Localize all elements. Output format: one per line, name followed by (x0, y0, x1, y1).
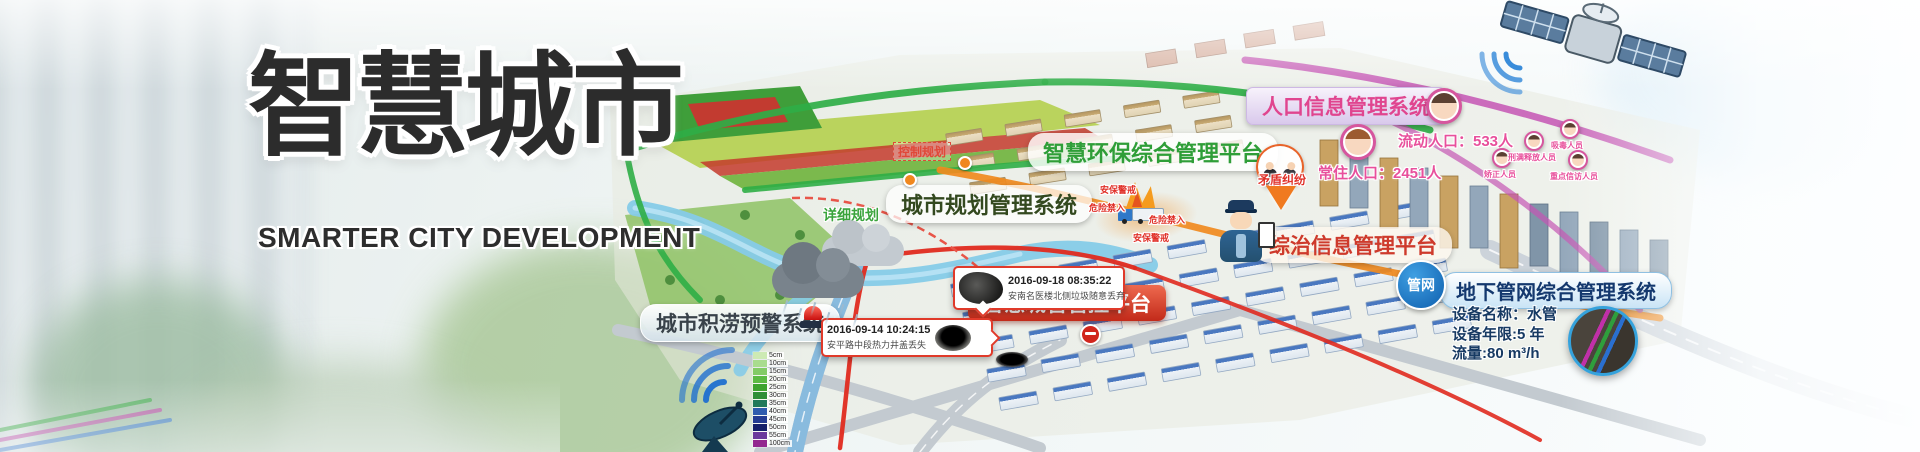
dish-signal-arcs (682, 350, 732, 400)
pipe-device-age: 设备年限:5 年 (1452, 323, 1545, 344)
focus-group-label: 重点信访人员 (1550, 171, 1598, 182)
manhole-photo (935, 325, 971, 351)
satellite-icon (1488, 0, 1698, 86)
danger-no-entry-label: 危险禁入 (1089, 201, 1125, 214)
label-environment-platform[interactable]: 智慧环保综合管理平台 (1028, 133, 1278, 171)
label-governance-platform[interactable]: 综治信息管理平台 (1254, 227, 1452, 263)
pipe-flow-rate: 流量:80 m³/h (1452, 342, 1540, 363)
dish-body (689, 401, 751, 452)
label-planning-system[interactable]: 城市规划管理系统 (886, 185, 1092, 223)
env-alert-icon (958, 156, 972, 170)
incident-time: 2016-09-18 08:35:22 (1008, 275, 1125, 287)
focus-group-label: 刑满释放人员 (1508, 152, 1556, 163)
resident-population-pin-icon (1340, 124, 1376, 160)
rain-streaks (782, 300, 872, 340)
garbage-photo (959, 272, 1003, 304)
pipe-network-pin-icon[interactable]: 管网 (1396, 260, 1446, 310)
focus-group-pin-icon (1560, 119, 1580, 139)
open-manhole-icon (996, 352, 1028, 367)
focus-group-pin-icon (1524, 131, 1544, 151)
focus-group-label: 矫正人员 (1484, 169, 1516, 180)
satellite-dish-icon (662, 336, 792, 452)
incident-desc: 安南名医楼北侧垃圾随意丢弃 (1008, 289, 1125, 302)
resident-population-label: 常住人口：2451人 (1318, 162, 1441, 183)
banner-subtitle: SMARTER CITY DEVELOPMENT (258, 222, 700, 254)
banner-title: 智慧城市 (248, 48, 680, 166)
bottom-left-haze (0, 380, 560, 452)
danger-no-entry-label: 危险禁入 (1149, 213, 1185, 226)
security-cordon-label: 安保警戒 (1100, 183, 1136, 196)
pipe-cross-section-view (1568, 306, 1638, 376)
pipe-device-name: 设备名称：水管 (1452, 303, 1557, 324)
security-cordon-label: 安保警戒 (1133, 231, 1169, 244)
no-entry-sign-icon (1080, 324, 1101, 345)
handheld-terminal-icon (1258, 222, 1275, 248)
label-population-system[interactable]: 人口信息管理系统 (1246, 87, 1446, 125)
incident-callout-garbage: 2016-09-18 08:35:22 安南名医楼北侧垃圾随意丢弃 (953, 266, 1125, 310)
rain-cloud-icon (772, 262, 864, 298)
floating-population-pin-icon (1426, 88, 1462, 124)
smart-city-banner: 智慧城市 SMARTER CITY DEVELOPMENT 控制规划 详细规划 … (0, 0, 1920, 452)
police-officer-figure (1214, 198, 1268, 264)
focus-group-pin-icon (1568, 150, 1588, 170)
dispute-arrow-icon (1266, 186, 1296, 210)
control-planning-label: 控制规划 (893, 142, 951, 161)
env-alert-icon (903, 173, 917, 187)
floating-population-label: 流动人口：533人 (1398, 130, 1513, 151)
